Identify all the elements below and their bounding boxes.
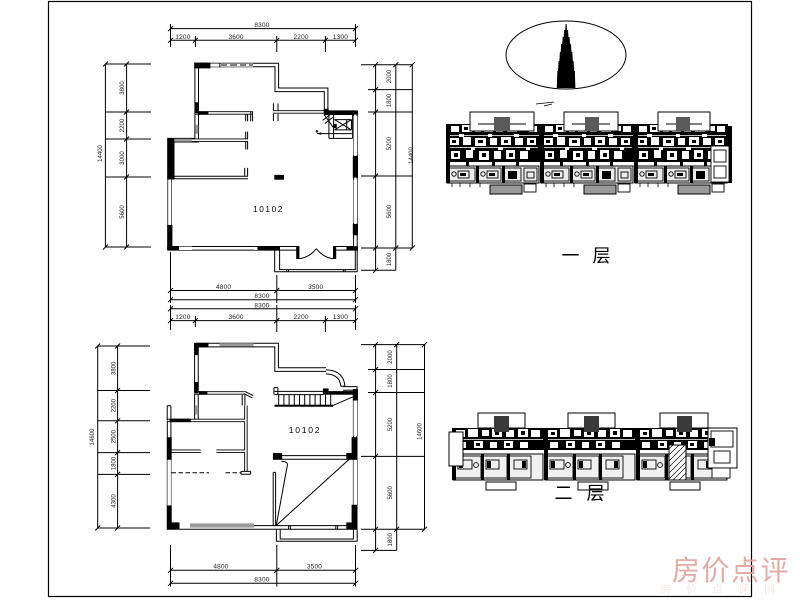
svg-text:10102: 10102 [253,205,284,214]
svg-text:2200: 2200 [111,398,117,412]
svg-text:3600: 3600 [228,314,243,321]
svg-text:5600: 5600 [387,204,393,218]
svg-text:8300: 8300 [254,577,269,584]
svg-text:2200: 2200 [293,314,308,321]
svg-text:3800: 3800 [111,361,117,375]
svg-text:5200: 5200 [388,417,394,431]
svg-text:10102: 10102 [289,425,321,435]
svg-text:1200: 1200 [175,34,190,41]
svg-text:2000: 2000 [388,350,394,364]
svg-text:4300: 4300 [111,494,117,508]
svg-text:3000: 3000 [120,151,126,165]
svg-text:房价点评: 房价点评 [672,555,790,586]
svg-text:1800: 1800 [388,374,394,388]
svg-text:8300: 8300 [254,302,269,309]
svg-text:5600: 5600 [120,205,126,219]
svg-text:2000: 2000 [387,69,393,83]
svg-text:3500: 3500 [308,284,323,291]
svg-text:14400: 14400 [98,144,104,161]
svg-text:2200: 2200 [293,34,308,41]
svg-text:4800: 4800 [213,564,228,571]
svg-text:1800: 1800 [387,252,393,266]
svg-text:2200: 2200 [120,118,126,132]
svg-text:1800: 1800 [111,456,117,470]
svg-text:二: 二 [555,484,573,504]
svg-text:房价点评网: 房价点评网 [660,583,790,596]
svg-text:3500: 3500 [307,564,322,571]
svg-text:层: 层 [593,246,611,266]
svg-text:2500: 2500 [111,429,117,443]
svg-text:14400: 14400 [409,146,415,163]
svg-text:一: 一 [562,246,580,266]
svg-text:8300: 8300 [254,22,269,29]
svg-text:14600: 14600 [418,422,424,439]
svg-text:1800: 1800 [388,532,394,546]
svg-text:1300: 1300 [333,314,348,321]
svg-text:1300: 1300 [333,34,348,41]
svg-text:3800: 3800 [120,81,126,95]
svg-text:3600: 3600 [228,34,243,41]
svg-text:4800: 4800 [216,284,231,291]
svg-text:5200: 5200 [387,136,393,150]
svg-text:14600: 14600 [90,428,96,445]
svg-text:8300: 8300 [254,293,269,300]
svg-text:层: 层 [587,484,605,504]
svg-text:5600: 5600 [388,485,394,499]
svg-text:1200: 1200 [175,314,190,321]
svg-text:1800: 1800 [387,93,393,107]
